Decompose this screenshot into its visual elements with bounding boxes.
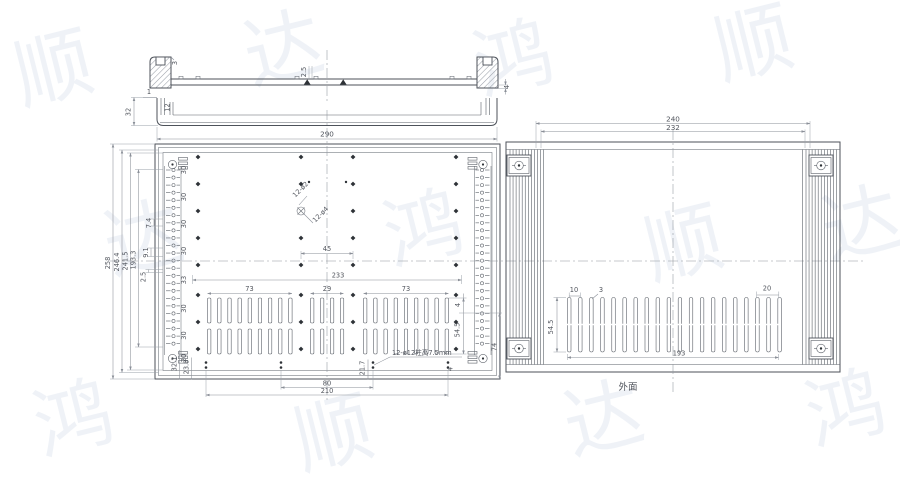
vent-slot — [279, 329, 282, 354]
vent-slot — [248, 298, 251, 323]
hole-marker — [196, 209, 201, 214]
tooth — [172, 282, 175, 285]
hole-marker — [299, 347, 304, 352]
tooth — [172, 191, 175, 194]
row-spacing-dim: 30 — [180, 193, 188, 201]
vent-slot — [218, 298, 221, 323]
tooth — [172, 319, 175, 322]
dim-corner-321: 32.1 — [171, 357, 179, 372]
row-spacing-dim: 30 — [180, 166, 188, 174]
hole-callout-small: 12-ø2 — [291, 180, 310, 199]
vent-slot-groups — [208, 298, 449, 354]
dim-off-74: 74 — [491, 343, 499, 351]
dim-s-25: 2.5 — [140, 272, 148, 283]
hole-marker — [196, 236, 201, 241]
hole-marker — [351, 182, 356, 187]
dim-slot-width: 3 — [599, 286, 603, 294]
tooth — [480, 214, 483, 217]
vent-slot — [445, 298, 448, 323]
small-hole — [345, 181, 347, 183]
boss-dot — [447, 361, 450, 364]
dim-group-29: 29 — [323, 285, 331, 293]
vent-slot — [248, 329, 251, 354]
hole-marker — [196, 347, 201, 352]
dim-h-258: 258 — [104, 257, 112, 270]
dim-hole-pitch: 45 — [323, 245, 331, 253]
enclosure-drawing: 顺达鸿顺达鸿顺达鸿顺达鸿 3 2.5 4 — [0, 0, 900, 500]
vent-slot — [374, 329, 377, 354]
tooth — [480, 221, 483, 224]
tooth — [172, 304, 175, 307]
watermark-char: 顺 — [635, 192, 732, 298]
dim-slot-pitch: 10 — [570, 286, 578, 294]
dim-s-74: 7.4 — [145, 218, 153, 229]
hole-marker — [454, 347, 459, 352]
watermark-char: 顺 — [705, 0, 802, 98]
screw-tab — [507, 155, 531, 176]
vent-slot — [374, 298, 377, 323]
row-spacing-dim: 30 — [180, 331, 188, 339]
tooth — [172, 289, 175, 292]
vent-slot — [208, 298, 211, 323]
tooth — [480, 312, 483, 315]
hole-marker — [196, 263, 201, 268]
tooth — [480, 319, 483, 322]
vent-slot — [311, 329, 314, 354]
vent-slot — [311, 298, 314, 323]
vent-slot — [384, 329, 387, 354]
inside-view: 12-ø2 12-ø4 45 233 73 29 73 4 54.5 74 32… — [104, 110, 866, 400]
vent-slot — [258, 298, 261, 323]
hole-marker — [351, 263, 356, 268]
dim-lip: 1 — [147, 88, 151, 96]
tooth — [172, 184, 175, 187]
vent-slot — [320, 329, 323, 354]
dim-corner-217: 21.7 — [359, 361, 367, 376]
dim-slot-span: 193 — [673, 350, 686, 358]
hole-marker — [196, 320, 201, 325]
vent-slot — [364, 329, 367, 354]
row-spacing-dim: 30 — [180, 220, 188, 228]
dim-group-73b: 73 — [402, 285, 410, 293]
hole-marker — [454, 155, 459, 160]
dim-channel-height: 32 — [125, 108, 133, 116]
watermark-char: 达 — [235, 0, 332, 103]
hole-marker — [454, 182, 459, 187]
vent-slot — [289, 329, 292, 354]
corner-boss — [468, 352, 487, 364]
vent-slot — [268, 329, 271, 354]
vent-slot — [320, 298, 323, 323]
vent-slot — [330, 298, 333, 323]
vent-slot — [384, 298, 387, 323]
watermark-layer: 顺达鸿顺达鸿顺达鸿顺达鸿 — [5, 0, 900, 488]
watermark-char: 顺 — [285, 382, 382, 488]
vent-slot — [415, 298, 418, 323]
watermark-char: 达 — [555, 367, 652, 473]
tooth — [172, 342, 175, 345]
section-left-notch — [156, 57, 165, 65]
boss-dot — [205, 361, 208, 364]
hole-marker — [299, 320, 304, 325]
tooth — [172, 327, 175, 330]
boss-note: 12-ø12柱高7.5mm — [392, 348, 452, 357]
vent-slot — [268, 298, 271, 323]
vent-slot — [364, 298, 367, 323]
dim-depth: 12 — [164, 103, 172, 111]
boss-dot — [372, 361, 375, 364]
hole-marker — [351, 236, 356, 241]
tooth — [480, 274, 483, 277]
watermark-char: 鸿 — [797, 357, 894, 463]
vent-slots-outside — [566, 298, 781, 353]
vent-slot — [330, 329, 333, 354]
tooth — [480, 304, 483, 307]
tooth — [172, 335, 175, 338]
engineering-drawing-canvas: 顺达鸿顺达鸿顺达鸿顺达鸿 3 2.5 4 — [0, 0, 900, 500]
hole-marker — [351, 293, 356, 298]
section-right-notch — [483, 57, 492, 65]
tooth — [480, 229, 483, 232]
tooth — [480, 191, 483, 194]
vent-slot — [238, 329, 241, 354]
tooth — [480, 342, 483, 345]
vent-slot — [208, 329, 211, 354]
hole-marker — [299, 155, 304, 160]
row-spacing-dim: 33 — [180, 276, 188, 284]
screw-tab — [809, 155, 833, 176]
tooth — [480, 244, 483, 247]
hole-marker — [351, 320, 356, 325]
row-spacing-dim: 30 — [180, 304, 188, 312]
watermark-char: 达 — [813, 172, 900, 278]
tooth — [480, 236, 483, 239]
dim-h-2464: 246.4 — [113, 253, 121, 272]
dim-232: 232 — [666, 123, 680, 132]
tooth — [172, 297, 175, 300]
small-hole — [308, 181, 310, 183]
tooth — [480, 297, 483, 300]
watermark-char: 鸿 — [375, 177, 472, 283]
tooth — [480, 176, 483, 179]
dim-bottom-210: 210 — [321, 387, 334, 395]
boss-dot — [280, 361, 283, 364]
dim-wall-thickness: 3 — [171, 61, 179, 65]
tooth — [480, 259, 483, 262]
screw-tab — [507, 338, 531, 359]
hole-marker — [299, 263, 304, 268]
hole-marker — [196, 155, 201, 160]
vent-slot — [228, 298, 231, 323]
tooth — [480, 282, 483, 285]
hole-marker — [351, 347, 356, 352]
vent-slot — [435, 298, 438, 323]
tooth — [480, 251, 483, 254]
channel-view: 1 12 32 290 — [125, 88, 498, 142]
dim-slot-height-left: 54.5 — [454, 323, 462, 338]
vent-slot — [289, 298, 292, 323]
tooth — [480, 184, 483, 187]
hole-marker — [299, 236, 304, 241]
tooth — [480, 267, 483, 270]
hole-marker — [454, 293, 459, 298]
vent-slot — [394, 298, 397, 323]
hole-marker — [351, 155, 356, 160]
dim-span-233: 233 — [332, 272, 345, 280]
vent-slot — [228, 329, 231, 354]
vent-slot — [279, 298, 282, 323]
dim-web-thickness: 2.5 — [300, 67, 308, 78]
dim-slot-height-right: 54.5 — [547, 320, 555, 335]
vent-slot — [340, 329, 343, 354]
vent-slot — [238, 298, 241, 323]
dim-corner-4: 4 — [447, 367, 455, 371]
hole-marker — [351, 209, 356, 214]
boss-dot — [205, 366, 208, 369]
dim-slot-offset-4: 4 — [454, 303, 462, 307]
watermark-char: 顺 — [5, 17, 102, 123]
vent-slot — [340, 298, 343, 323]
boss-dot — [372, 366, 375, 369]
dim-h-1933: 193.3 — [130, 251, 138, 270]
vent-slot — [425, 298, 428, 323]
watermark-char: 鸿 — [25, 367, 122, 473]
tooth — [480, 289, 483, 292]
boss-dot — [280, 366, 283, 369]
hole-marker — [196, 293, 201, 298]
row-spacing-dim: 30 — [180, 247, 188, 255]
dim-slot-endpitch: 20 — [763, 285, 771, 293]
dim-flange-thickness: 4 — [503, 85, 511, 89]
dim-group-73a: 73 — [245, 285, 253, 293]
tooth — [172, 176, 175, 179]
vent-slot — [218, 329, 221, 354]
dim-h-2415: 241.5 — [122, 252, 130, 271]
dim-s-91: 9.1 — [142, 247, 150, 258]
corner-boss — [468, 158, 487, 170]
vent-slot — [404, 298, 407, 323]
tooth — [480, 206, 483, 209]
row-spacing-dim: 20 — [180, 354, 188, 362]
screw-tab — [809, 338, 833, 359]
tooth — [480, 335, 483, 338]
hole-marker — [299, 293, 304, 298]
hole-marker — [196, 182, 201, 187]
tooth — [480, 199, 483, 202]
face-label: 外面 — [618, 381, 637, 393]
tooth — [172, 312, 175, 315]
vent-slot — [258, 329, 261, 354]
tooth — [480, 327, 483, 330]
